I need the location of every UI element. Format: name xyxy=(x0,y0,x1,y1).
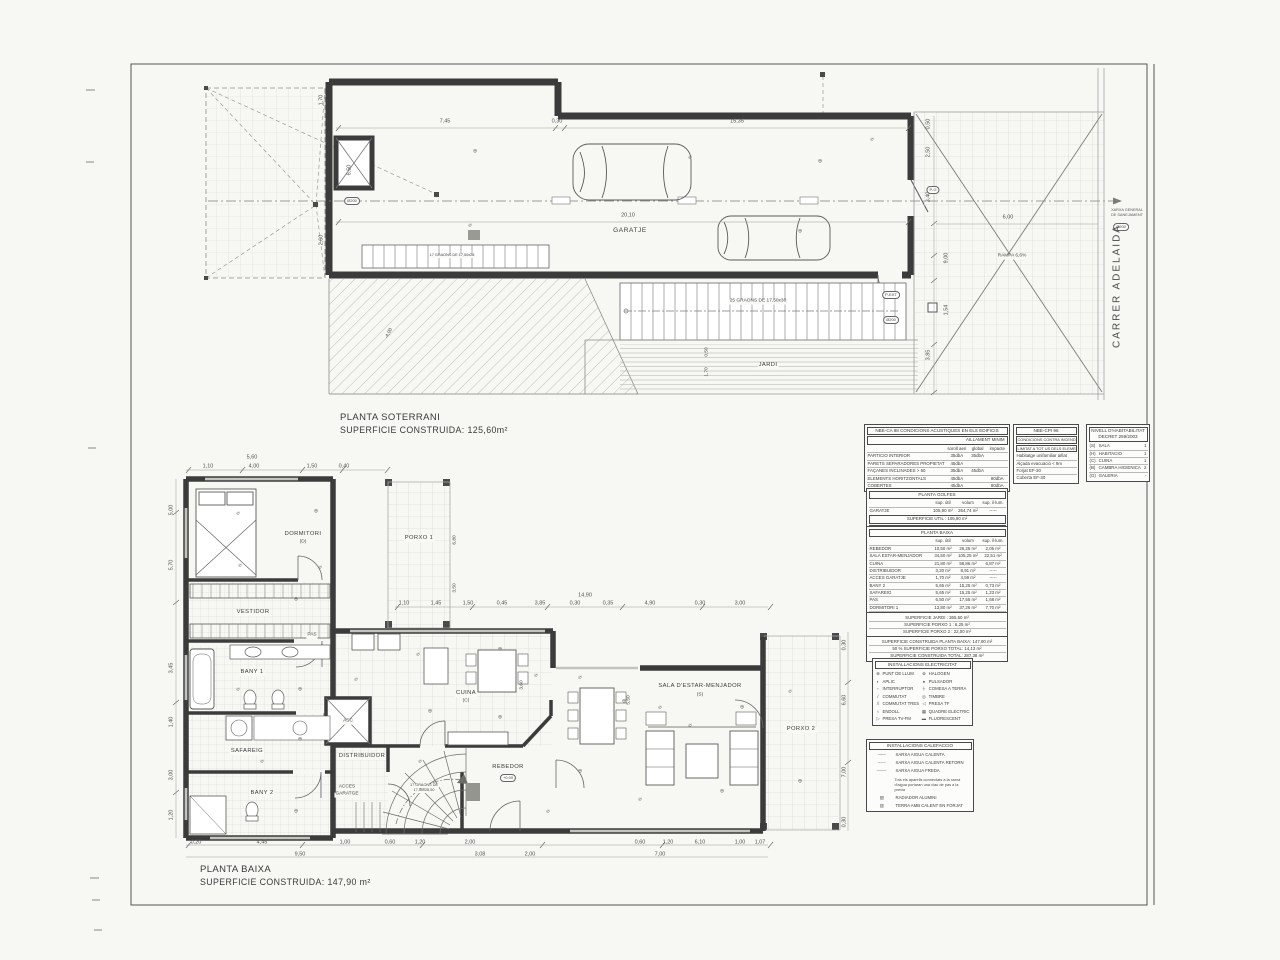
table-cell: QUADRE ELECTRIC xyxy=(928,708,971,716)
table-cell: REBEDOR xyxy=(869,545,931,552)
title-line: PLANTA SOTERRANI xyxy=(340,412,508,425)
jardi-area xyxy=(585,340,918,394)
table-cell: // xyxy=(875,700,882,708)
table-cell: 50 % SUPERFICIE PORXO TOTAL: 14,13 m² xyxy=(869,645,1006,652)
table-cell: PUNT DE LLUM xyxy=(881,670,920,678)
plan-soterrani xyxy=(204,68,1122,400)
table-cell xyxy=(968,460,987,467)
table-cell: 1 xyxy=(1142,450,1148,457)
exterior-stairs-icon xyxy=(620,283,906,340)
table-cell: SUPERFICIE JARDI : 365,50 m² xyxy=(869,615,1006,622)
table-cell: (S) xyxy=(1089,443,1098,450)
table-cell: 35dbA xyxy=(946,468,969,475)
table-cell: 264,74 m² xyxy=(956,507,981,514)
washer-icon xyxy=(226,716,330,740)
table-cell: 6,87 m² xyxy=(981,560,1006,567)
table-cell: (C) xyxy=(1089,458,1098,465)
table-cell: 26,25 m² xyxy=(956,545,981,552)
sofa-icon xyxy=(646,712,758,785)
table-cell: —— xyxy=(869,751,895,759)
bathtub-icon xyxy=(190,649,214,709)
table-cell: sup. útil xyxy=(931,538,956,545)
table-cell xyxy=(987,460,1007,467)
table-cell: SALA xyxy=(1098,443,1142,450)
table-cell: APLIC xyxy=(881,678,920,686)
table-title: PLANTA BAIXA xyxy=(869,529,1006,538)
table-cell: 1,23 m² xyxy=(981,590,1006,597)
table-cell: 17,55 m² xyxy=(956,597,981,604)
table-fire: NBE-CPI 96 CONDICIONS CONTRA INCENDI EN … xyxy=(1013,424,1079,484)
table-cell: HABITACIO xyxy=(1098,450,1142,457)
table-cell: COMESA A TERRA xyxy=(928,685,971,693)
table-cell: 45dbA xyxy=(946,460,969,467)
table-cell: PRESA TV-FM xyxy=(881,715,920,723)
table-cell: ⌐ xyxy=(875,685,882,693)
table-cell: Forjat EF-30 xyxy=(1016,468,1077,475)
table-cell: 105,25 m² xyxy=(956,553,981,560)
table-cell: 35dbA xyxy=(968,453,987,460)
porxo2-floor xyxy=(764,636,838,830)
table-cell: 6,50 m² xyxy=(931,597,956,604)
table-cell: INTERRUPTOR xyxy=(881,685,920,693)
plan-baixa xyxy=(173,467,851,857)
table-cell xyxy=(968,475,987,482)
table-cell: PAS xyxy=(869,597,931,604)
table-cell: 8,91 m² xyxy=(956,567,981,574)
table-cell: ⊕ xyxy=(875,670,882,678)
table-cell: ELEMENTS HORITZONTALS xyxy=(867,475,946,482)
table-cell: ▨ xyxy=(869,794,895,802)
table-cell: sup. il·lum. xyxy=(981,500,1006,507)
bed-icon xyxy=(196,489,256,577)
table-cell: impacte xyxy=(987,446,1007,453)
table-cell: 105,90 m² xyxy=(931,507,956,514)
table-cell xyxy=(867,446,946,453)
title-planta-baixa: PLANTA BAIXA SUPERFICIE CONSTRUIDA: 147,… xyxy=(200,864,371,889)
table-cell: (B) xyxy=(1089,465,1098,472)
elevator-icon xyxy=(326,698,370,744)
table-cell: 45dbA xyxy=(946,475,969,482)
table-cell: 10,50 m² xyxy=(931,545,956,552)
table-cell: ◁ xyxy=(920,700,928,708)
table-cell: 0,73 m² xyxy=(981,582,1006,589)
table-cell: 3,20 m² xyxy=(931,567,956,574)
table-cell: soroll aeri xyxy=(946,446,969,453)
table-cell: 22,51 m² xyxy=(981,553,1006,560)
table-cell: COMMUTAT TRES xyxy=(881,700,920,708)
table-cell: 45dbA xyxy=(968,468,987,475)
table-cell: SUPERFICIE PORXO 1 : 6,25 m² xyxy=(869,621,1006,628)
table-cell: XARXA AIGUA CALENTA xyxy=(895,751,972,759)
table-acoustic: NBE-CA 88 CONDICIONS ACUSTIQUES EN ELS E… xyxy=(864,424,1010,492)
shower-icon xyxy=(190,796,226,834)
table-cell: —·—· xyxy=(869,767,895,775)
table-cell: global xyxy=(968,446,987,453)
table-cell: 1,70 m² xyxy=(931,575,956,582)
table-cell: 1 xyxy=(1142,443,1148,450)
table-cell: SUPERFICIE PORXO 2 : 22,00 m² xyxy=(869,629,1006,636)
table-cell: DISTRIBUIDOR xyxy=(869,567,931,574)
table-cell: 37,26 m² xyxy=(956,604,981,611)
table-cell: Alçada evacuació < 9m xyxy=(1016,460,1077,467)
table-cell: SAFAREIG xyxy=(869,590,931,597)
table-cell: GARATJE xyxy=(869,507,931,514)
table-title: NBE-CPI 96 xyxy=(1016,427,1077,436)
table-cell: sup. útil xyxy=(931,500,956,507)
table-cell: XARXA AIGUA CALENTA RETORN xyxy=(895,759,972,767)
sink-icon xyxy=(230,645,330,659)
table-cell: ∩ xyxy=(875,708,882,716)
table-cell: 1 xyxy=(1142,458,1148,465)
table-title: PLANTA GOLFES xyxy=(869,491,1006,500)
table-cell: (G) xyxy=(1089,472,1098,479)
street-label: CARRER ADELAIDA xyxy=(1112,224,1123,348)
table-cell: 15,25 m² xyxy=(956,582,981,589)
table-cell: 15,25 m² xyxy=(956,590,981,597)
table-cell: PARTICIO INTERIOR xyxy=(867,453,946,460)
table-cell: GALERIA xyxy=(1098,472,1142,479)
table-cell: 80dbA xyxy=(987,475,1007,482)
table-cell: 4,59 m² xyxy=(956,575,981,582)
table-habitability: NIVELL D'HABITABILITAT DECRET 259/2003 (… xyxy=(1086,424,1150,482)
table-cell: FAÇANES INCLINADES > 60 xyxy=(867,468,946,475)
table-cell xyxy=(987,468,1007,475)
table-cell: ◐ xyxy=(875,678,882,686)
table-cell: ⏚ xyxy=(920,685,928,693)
table-cell: 35dbA xyxy=(946,453,969,460)
table-cell: SALA ESTAR-MENJADOR xyxy=(869,553,931,560)
table-cell: RADIADOR ALUMINI xyxy=(895,794,972,802)
table-cell: SUPERFICIE CONSTRUIDA PLANTA BAIXA: 147,… xyxy=(869,639,1006,646)
table-cell: ACCES GARATJE xyxy=(869,575,931,582)
table-cell: - xyxy=(1142,472,1148,479)
superficie-util: SUPERFICIE UTIL : 105,90 m² xyxy=(869,515,1006,524)
table-cell: 58,86 m² xyxy=(956,560,981,567)
table-cell: BANY 2 xyxy=(869,582,931,589)
table-cell: DORMITORI 1 xyxy=(869,604,931,611)
table-cell: volum xyxy=(956,500,981,507)
table-cell: ⊗ xyxy=(920,670,928,678)
table-cell: ● xyxy=(920,678,928,686)
table-cell: CUINA xyxy=(1098,458,1142,465)
scan-artifacts xyxy=(86,90,102,930)
table-cell: PULSADOR xyxy=(928,678,971,686)
table-cell: ENDOLL xyxy=(881,708,920,716)
legend-heating: INSTALLACIONS CALEFACCIO ——XARXA AIGUA C… xyxy=(866,739,974,812)
table-cell: 21,80 m² xyxy=(931,560,956,567)
table-cell: Coberta EF-30 xyxy=(1016,475,1077,482)
table-title: NBE-CA 88 CONDICIONS ACUSTIQUES EN ELS E… xyxy=(867,427,1008,436)
car-icon xyxy=(718,216,830,260)
table-cell: ----- xyxy=(981,507,1006,514)
table-cell: 5,65 m² xyxy=(931,590,956,597)
table-summary-porxo: SUPERFICIE JARDI : 365,50 m²SUPERFICIE P… xyxy=(866,612,1008,638)
table-cell xyxy=(869,500,931,507)
dining-table-icon xyxy=(568,688,626,744)
table-title: NIVELL D'HABITABILITAT DECRET 259/2003 xyxy=(1089,427,1148,443)
table-subtitle: AILLAMENT MINIM xyxy=(867,436,1008,445)
table-cell: TERRA AMB CALENT EN FORJAT xyxy=(895,802,972,810)
table-cell: (H) xyxy=(1089,450,1098,457)
car-icon xyxy=(573,144,691,200)
table-cell: PRESA TF xyxy=(928,700,971,708)
table-cell: TIMBRE xyxy=(928,693,971,701)
table-subtitle: LIMITAT A TOT US DELS ELEMENTS ESTRUCTUR… xyxy=(1016,445,1077,452)
title-line: PLANTA BAIXA xyxy=(200,864,371,877)
legend-note: Tots els aparells connectats a la xarxa … xyxy=(895,777,966,793)
table-cell: 2,05 m² xyxy=(981,545,1006,552)
title-area: SUPERFICIE CONSTRUIDA: 125,60m² xyxy=(340,425,508,437)
table-cell: / xyxy=(875,693,882,701)
title-area: SUPERFICIE CONSTRUIDA: 147,90 m² xyxy=(200,877,371,889)
table-cell: ----- xyxy=(981,567,1006,574)
table-cell: ----- xyxy=(981,575,1006,582)
table-cell: 13,80 m² xyxy=(931,604,956,611)
elevator-icon xyxy=(336,138,372,188)
table-cell: FLUORESCENT xyxy=(928,715,971,723)
legend-title: INSTALLACIONS CALEFACCIO xyxy=(869,742,972,751)
legend-electric: INSTALLACIONS ELECTRICITAT ⊕PUNT DE LLUM… xyxy=(872,658,973,726)
table-cell: sup. il·lum. xyxy=(981,538,1006,545)
table-cell: ◎ xyxy=(920,693,928,701)
scanned-floor-plan-sheet: 7,450,3015,3520,10GARATJEJARDIRAMPA 6,6%… xyxy=(0,0,1280,960)
table-cell: ▷ xyxy=(875,715,882,723)
table-cell: – – – xyxy=(869,759,895,767)
table-cell: 34,50 m² xyxy=(931,553,956,560)
legend-title: INSTALLACIONS ELECTRICITAT xyxy=(875,661,971,670)
table-cell: Habitatge unifamiliar aïllat xyxy=(1016,453,1077,460)
table-cell: ▦ xyxy=(920,708,928,716)
table-cell: 5,65 m² xyxy=(931,582,956,589)
table-cell: HALOGEN xyxy=(928,670,971,678)
table-cell xyxy=(869,538,931,545)
table-cell: CAMBRA HIGIENICA xyxy=(1098,465,1142,472)
garage-stairs-icon xyxy=(362,230,549,268)
table-subtitle: CONDICIONS CONTRA INCENDI EN ELS EDIFICI… xyxy=(1016,436,1077,443)
table-cell: 7,70 m² xyxy=(981,604,1006,611)
table-cell: ▬ xyxy=(920,715,928,723)
title-planta-soterrani: PLANTA SOTERRANI SUPERFICIE CONSTRUIDA: … xyxy=(340,412,508,437)
table-cell: volum xyxy=(956,538,981,545)
porxo1-floor xyxy=(388,482,450,628)
table-cell: 2 xyxy=(1142,465,1148,472)
table-cell: ▥ xyxy=(869,802,895,810)
toilet-icon xyxy=(246,802,258,821)
table-cell: CUINA xyxy=(869,560,931,567)
table-cell: PARETS SEPARADORES PROPIETAT xyxy=(867,460,946,467)
hatched-area xyxy=(329,279,638,394)
table-cell: COMMUTAT xyxy=(881,693,920,701)
table-cell xyxy=(987,453,1007,460)
table-cell: 1,68 m² xyxy=(981,597,1006,604)
table-cell: XARXA AIGUA FREDA xyxy=(895,767,972,775)
